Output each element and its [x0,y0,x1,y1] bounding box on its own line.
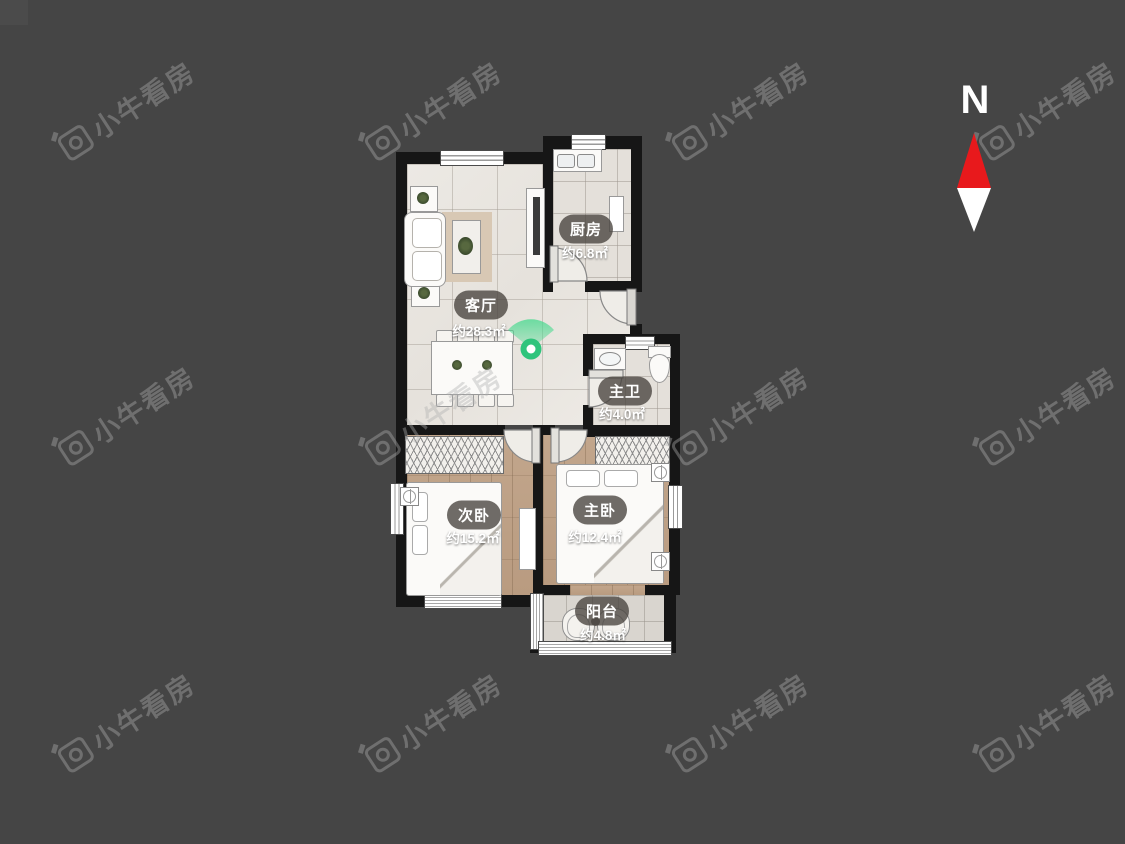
master-bedroom-door-arc [555,430,587,462]
watermark: 小牛看房 [359,663,509,779]
watermark: 小牛看房 [973,356,1123,472]
panorama-viewpoint-icon[interactable] [508,319,554,359]
room-label-balcony: 阳台 [575,597,629,626]
compass-north-label: N [930,80,1020,120]
niu-logo-icon [669,734,709,774]
room-area-balcony: 约4.8㎡ [580,624,626,644]
entry-door-leaf [627,289,636,325]
watermark: 小牛看房 [52,51,202,167]
niu-logo-icon [55,427,95,467]
room-area-second-bedroom: 约15.2㎡ [446,527,499,547]
master-bedroom-door-leaf [551,428,559,463]
niu-logo-icon [55,122,95,162]
kitchen-door-leaf [550,246,558,282]
niu-logo-icon [976,427,1016,467]
room-area-kitchen: 约6.8㎡ [562,242,608,262]
watermark: 小牛看房 [52,356,202,472]
room-label-second-bedroom: 次卧 [447,501,501,530]
niu-logo-icon [55,734,95,774]
room-area-bathroom: 约4.0㎡ [599,403,645,423]
niu-logo-icon [362,734,402,774]
watermark: 小牛看房 [52,663,202,779]
watermark: 小牛看房 [973,663,1123,779]
room-area-master-bedroom: 约12.4㎡ [568,526,621,546]
second-bedroom-door-arc [504,430,536,462]
room-area-living: 约28.3㎡ [452,320,505,340]
watermark: 小牛看房 [666,663,816,779]
compass-needle-icon [956,133,992,233]
room-label-bathroom: 主卫 [598,377,652,406]
corner-artifact [0,0,28,25]
second-bedroom-door-leaf [532,428,540,463]
room-label-living: 客厅 [454,291,508,320]
room-label-kitchen: 厨房 [559,215,613,244]
screenshot-root: { "app": { "watermark_text": "小牛看房" }, "… [0,0,1125,844]
compass: N [930,80,1020,120]
room-label-master-bedroom: 主卧 [573,496,627,525]
niu-logo-icon [976,734,1016,774]
